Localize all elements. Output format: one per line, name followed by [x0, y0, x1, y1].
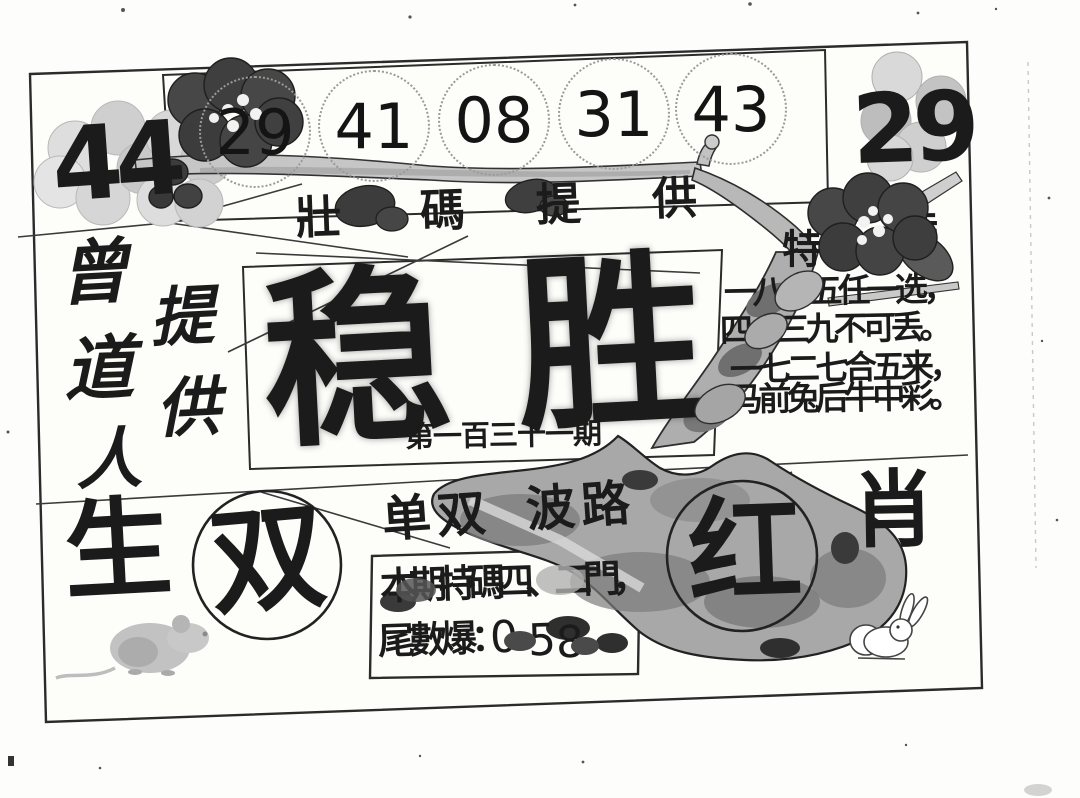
ball-1: 29 [199, 76, 311, 188]
banner-char-1: 壯 [295, 195, 342, 242]
tip-digit-2: 5 [527, 619, 557, 664]
ball-3: 08 [438, 64, 550, 176]
parity-label: 单双 [380, 488, 493, 545]
poem-line-4: 马前兔后牛中彩。 [730, 381, 959, 418]
lottery-tip-sheet: 44 29 41 08 31 43 29 壯 碼 提 供 曾 道 人 提 供 生… [0, 0, 1080, 798]
banner-char-4: 供 [651, 176, 698, 223]
provide-char-1: 提 [148, 284, 215, 351]
banner-char-2: 碼 [419, 188, 466, 235]
zodiac-right-char: 肖 [851, 469, 936, 554]
scan-scratch-line [1028, 62, 1036, 568]
poem-line-1: 一八二五任一选， [724, 274, 953, 311]
title-char-2: 胜 [511, 247, 709, 445]
big-number-left: 44 [49, 108, 182, 219]
issue-number: 第一百三十一期 [405, 420, 601, 452]
banner-char-3: 提 [535, 182, 582, 229]
ball-number: 43 [692, 73, 771, 146]
big-number-right: 29 [850, 78, 975, 178]
ball-number: 41 [335, 90, 414, 163]
color-answer: 红 [686, 494, 804, 612]
ball-number: 31 [575, 78, 654, 151]
zodiac-left-char: 生 [61, 495, 175, 609]
ball-2: 41 [318, 70, 430, 182]
provider-char-3: 人 [75, 427, 143, 495]
parity-answer: 双 [205, 499, 331, 625]
provide-char-2: 供 [154, 375, 221, 442]
tip-digit-1: 0 [489, 616, 519, 661]
tip-line-1: 本期特碼四、二門， [379, 559, 641, 606]
tip-digit-3: 8 [555, 621, 585, 666]
poem-label-right: 特 [898, 210, 938, 250]
poem-line-2: 四一三九不可丢。 [720, 312, 949, 349]
poem-label-left: 特 [782, 230, 822, 270]
ball-number: 29 [216, 96, 295, 169]
tip-line-2-label: 尾數爆： [377, 620, 502, 661]
ball-number: 08 [455, 84, 534, 157]
ball-5: 43 [675, 53, 787, 165]
provider-char-2: 道 [63, 335, 135, 407]
ball-4: 31 [558, 58, 670, 170]
provider-char-1: 曾 [56, 238, 130, 312]
wave-label: 波路 [524, 478, 637, 535]
